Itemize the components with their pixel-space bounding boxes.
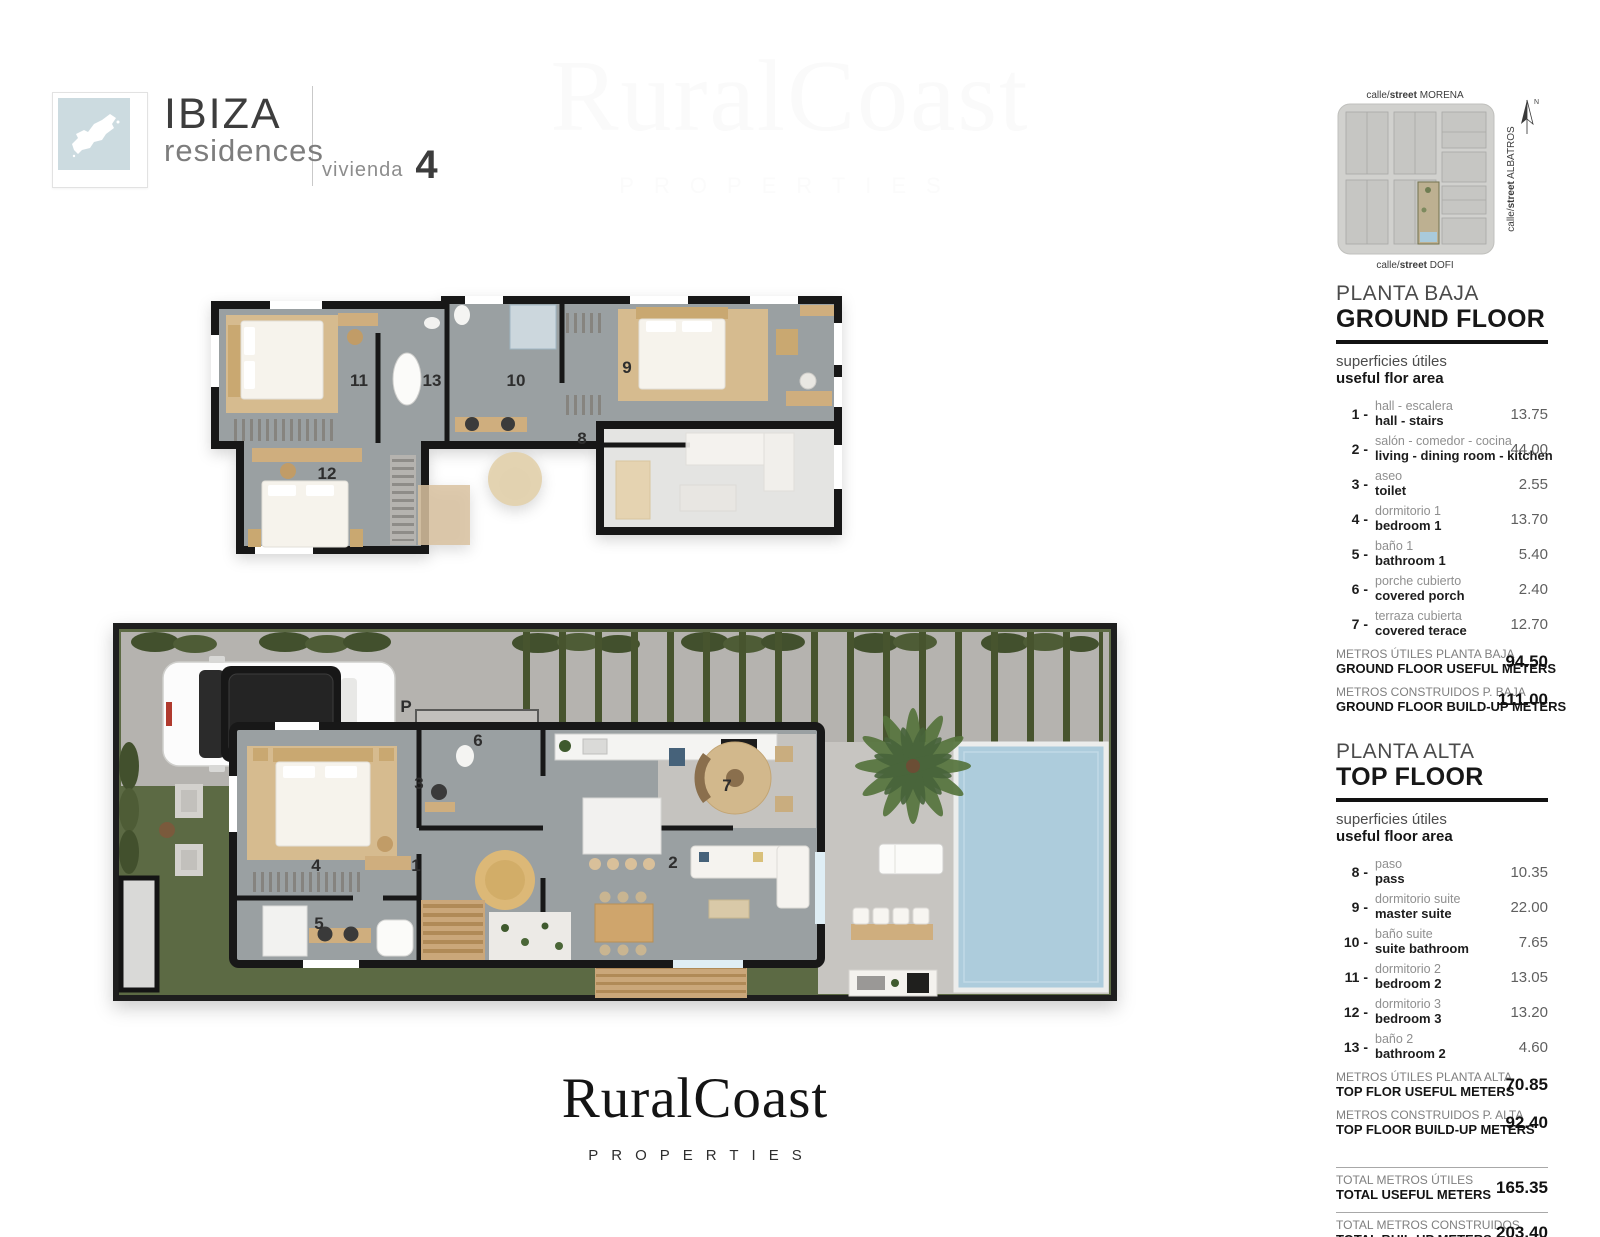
site-highlighted-unit xyxy=(1418,182,1439,244)
room-number: 2 - xyxy=(1336,441,1375,457)
subtotal-row: METROS ÚTILES PLANTA BAJAGROUND FLOOR US… xyxy=(1336,648,1548,676)
area-row: 9 -dormitorio suitemaster suite22.00 xyxy=(1336,893,1548,921)
room-label-8: 8 xyxy=(577,429,586,448)
room-number: 1 - xyxy=(1336,406,1375,422)
room-number: 8 - xyxy=(1336,864,1375,880)
dining-set xyxy=(595,892,653,956)
total-row: TOTAL METROS ÚTILESTOTAL USEFUL METERS16… xyxy=(1336,1167,1548,1206)
subtotal-value: 111.00 xyxy=(1492,690,1548,710)
sun-lounger xyxy=(879,844,943,874)
room-label-11: 11 xyxy=(350,371,368,390)
area-row: 10 -baño suitesuite bathroom7.65 xyxy=(1336,928,1548,956)
brand-subtitle: residences xyxy=(164,134,324,168)
north-compass-icon: N xyxy=(1521,99,1539,134)
area-row: 11 -dormitorio 2bedroom 213.05 xyxy=(1336,963,1548,991)
area-row: 12 -dormitorio 3bedroom 313.20 xyxy=(1336,998,1548,1026)
room-number: 11 - xyxy=(1336,969,1375,985)
unit-identifier: vivienda 4 xyxy=(322,148,438,182)
street-label-top: calle/street MORENA xyxy=(1366,90,1464,101)
room-label-2: 2 xyxy=(668,853,677,872)
room-label-5: 5 xyxy=(314,914,323,933)
area-row: 13 -baño 2bathroom 24.60 xyxy=(1336,1033,1548,1061)
room-number: 10 - xyxy=(1336,934,1375,950)
area-row: 3 -aseotoilet2.55 xyxy=(1336,470,1548,498)
area-value: 13.70 xyxy=(1504,511,1548,528)
room-number: 13 - xyxy=(1336,1039,1375,1055)
ground-floor-section: PLANTA BAJA GROUND FLOOR superficies úti… xyxy=(1336,282,1548,714)
unit-number: 4 xyxy=(415,148,437,182)
area-value: 4.60 xyxy=(1513,1039,1548,1056)
brand-name: IBIZA xyxy=(164,94,324,134)
area-row: 2 -salón - comedor - cocinaliving - dini… xyxy=(1336,435,1548,463)
area-value: 13.75 xyxy=(1504,406,1548,423)
area-value: 12.70 xyxy=(1504,616,1548,633)
rule xyxy=(1336,340,1548,344)
subheader-es: superficies útiles xyxy=(1336,811,1548,828)
street-label-bottom: calle/street DOFI xyxy=(1376,260,1453,271)
street-label-right: calle/street ALBATROS xyxy=(1506,126,1517,232)
area-value: 2.40 xyxy=(1513,581,1548,598)
room-label-1: 1 xyxy=(411,856,420,875)
area-value: 44.00 xyxy=(1504,441,1548,458)
brand-text: IBIZA residences xyxy=(164,92,324,188)
room-number: 4 - xyxy=(1336,511,1375,527)
ibiza-island-icon xyxy=(52,92,148,188)
area-value: 13.05 xyxy=(1504,969,1548,986)
subtotal-value: 94.50 xyxy=(1499,652,1548,672)
area-value: 13.20 xyxy=(1504,1004,1548,1021)
landing xyxy=(418,485,470,545)
room-number: 6 - xyxy=(1336,581,1375,597)
area-row: 8 -pasopass10.35 xyxy=(1336,858,1548,886)
agency-name: RuralCoast xyxy=(0,1066,1390,1131)
brand-logo: IBIZA residences xyxy=(52,92,324,188)
room-number: 5 - xyxy=(1336,546,1375,562)
unit-label: vivienda xyxy=(322,159,403,182)
section-title-es: PLANTA ALTA xyxy=(1336,740,1548,764)
room-label-6: 6 xyxy=(473,731,482,750)
room-number: 7 - xyxy=(1336,616,1375,632)
top-floor-plan: 11 13 10 9 8 12 xyxy=(210,293,842,555)
pool xyxy=(956,744,1106,990)
interior-stairs xyxy=(421,900,485,960)
outdoor-kitchen xyxy=(849,970,937,996)
svg-text:N: N xyxy=(1534,99,1539,106)
jute-rug-inner xyxy=(485,860,525,900)
room-label-4: 4 xyxy=(311,856,321,875)
site-location-map: calle/street MORENA N xyxy=(1318,86,1553,281)
room-number: 9 - xyxy=(1336,899,1375,915)
total-row: TOTAL METROS CONSTRUIDOSTOTAL BUIL-UP ME… xyxy=(1336,1212,1548,1237)
watermark-brand: RuralCoast xyxy=(520,38,1060,155)
area-row: 4 -dormitorio 1bedroom 113.70 xyxy=(1336,505,1548,533)
subtotal-row: METROS CONSTRUIDOS P. BAJAGROUND FLOOR B… xyxy=(1336,686,1548,714)
room-label-7: 7 xyxy=(722,776,731,795)
agency-tagline: PROPERTIES xyxy=(0,1147,1390,1164)
area-value: 5.40 xyxy=(1513,546,1548,563)
watermark-tagline: PROPERTIES xyxy=(520,173,1060,199)
room-label-10: 10 xyxy=(507,371,526,390)
area-value: 2.55 xyxy=(1513,476,1548,493)
room-label-13: 13 xyxy=(423,371,442,390)
area-value: 22.00 xyxy=(1504,899,1548,916)
room-label-3: 3 xyxy=(414,774,423,793)
garden-steps xyxy=(595,964,747,998)
gravel-patio xyxy=(489,912,571,960)
room-label-9: 9 xyxy=(622,358,631,377)
area-row: 6 -porche cubiertocovered porch2.40 xyxy=(1336,575,1548,603)
subtotal-value: 92.40 xyxy=(1499,1113,1548,1133)
bedroom-1-furniture xyxy=(247,746,411,870)
area-row: 5 -baño 1bathroom 15.40 xyxy=(1336,540,1548,568)
section-title-en: GROUND FLOOR xyxy=(1336,306,1548,333)
total-value: 203.40 xyxy=(1490,1223,1548,1237)
agency-logo: RuralCoast PROPERTIES xyxy=(0,1066,1390,1164)
room-number: 12 - xyxy=(1336,1004,1375,1020)
ground-floor-plan: P 6 3 4 1 2 5 7 xyxy=(113,616,1118,1006)
room-label-12: 12 xyxy=(318,464,337,483)
room-number: 3 - xyxy=(1336,476,1375,492)
area-row: 7 -terraza cubiertacovered terace12.70 xyxy=(1336,610,1548,638)
rule xyxy=(1336,798,1548,802)
area-value: 7.65 xyxy=(1513,934,1548,951)
area-row: 1 -hall - escalerahall - stairs13.75 xyxy=(1336,400,1548,428)
subheader-es: superficies útiles xyxy=(1336,353,1548,370)
subheader-en: useful flor area xyxy=(1336,370,1548,388)
total-value: 165.35 xyxy=(1490,1178,1548,1198)
brochure-page: RuralCoast PROPERTIES IBIZA residences v… xyxy=(0,0,1600,1237)
watermark: RuralCoast PROPERTIES xyxy=(520,38,1060,199)
totals-section: TOTAL METROS ÚTILESTOTAL USEFUL METERS16… xyxy=(1336,1167,1548,1237)
subheader-en: useful floor area xyxy=(1336,828,1548,846)
round-rug xyxy=(488,452,542,506)
label-parking: P xyxy=(400,697,411,716)
subtotal-value: 70.85 xyxy=(1499,1075,1548,1095)
storage-shed xyxy=(121,878,157,990)
section-title-en: TOP FLOOR xyxy=(1336,764,1548,791)
section-title-es: PLANTA BAJA xyxy=(1336,282,1548,306)
area-value: 10.35 xyxy=(1504,864,1548,881)
